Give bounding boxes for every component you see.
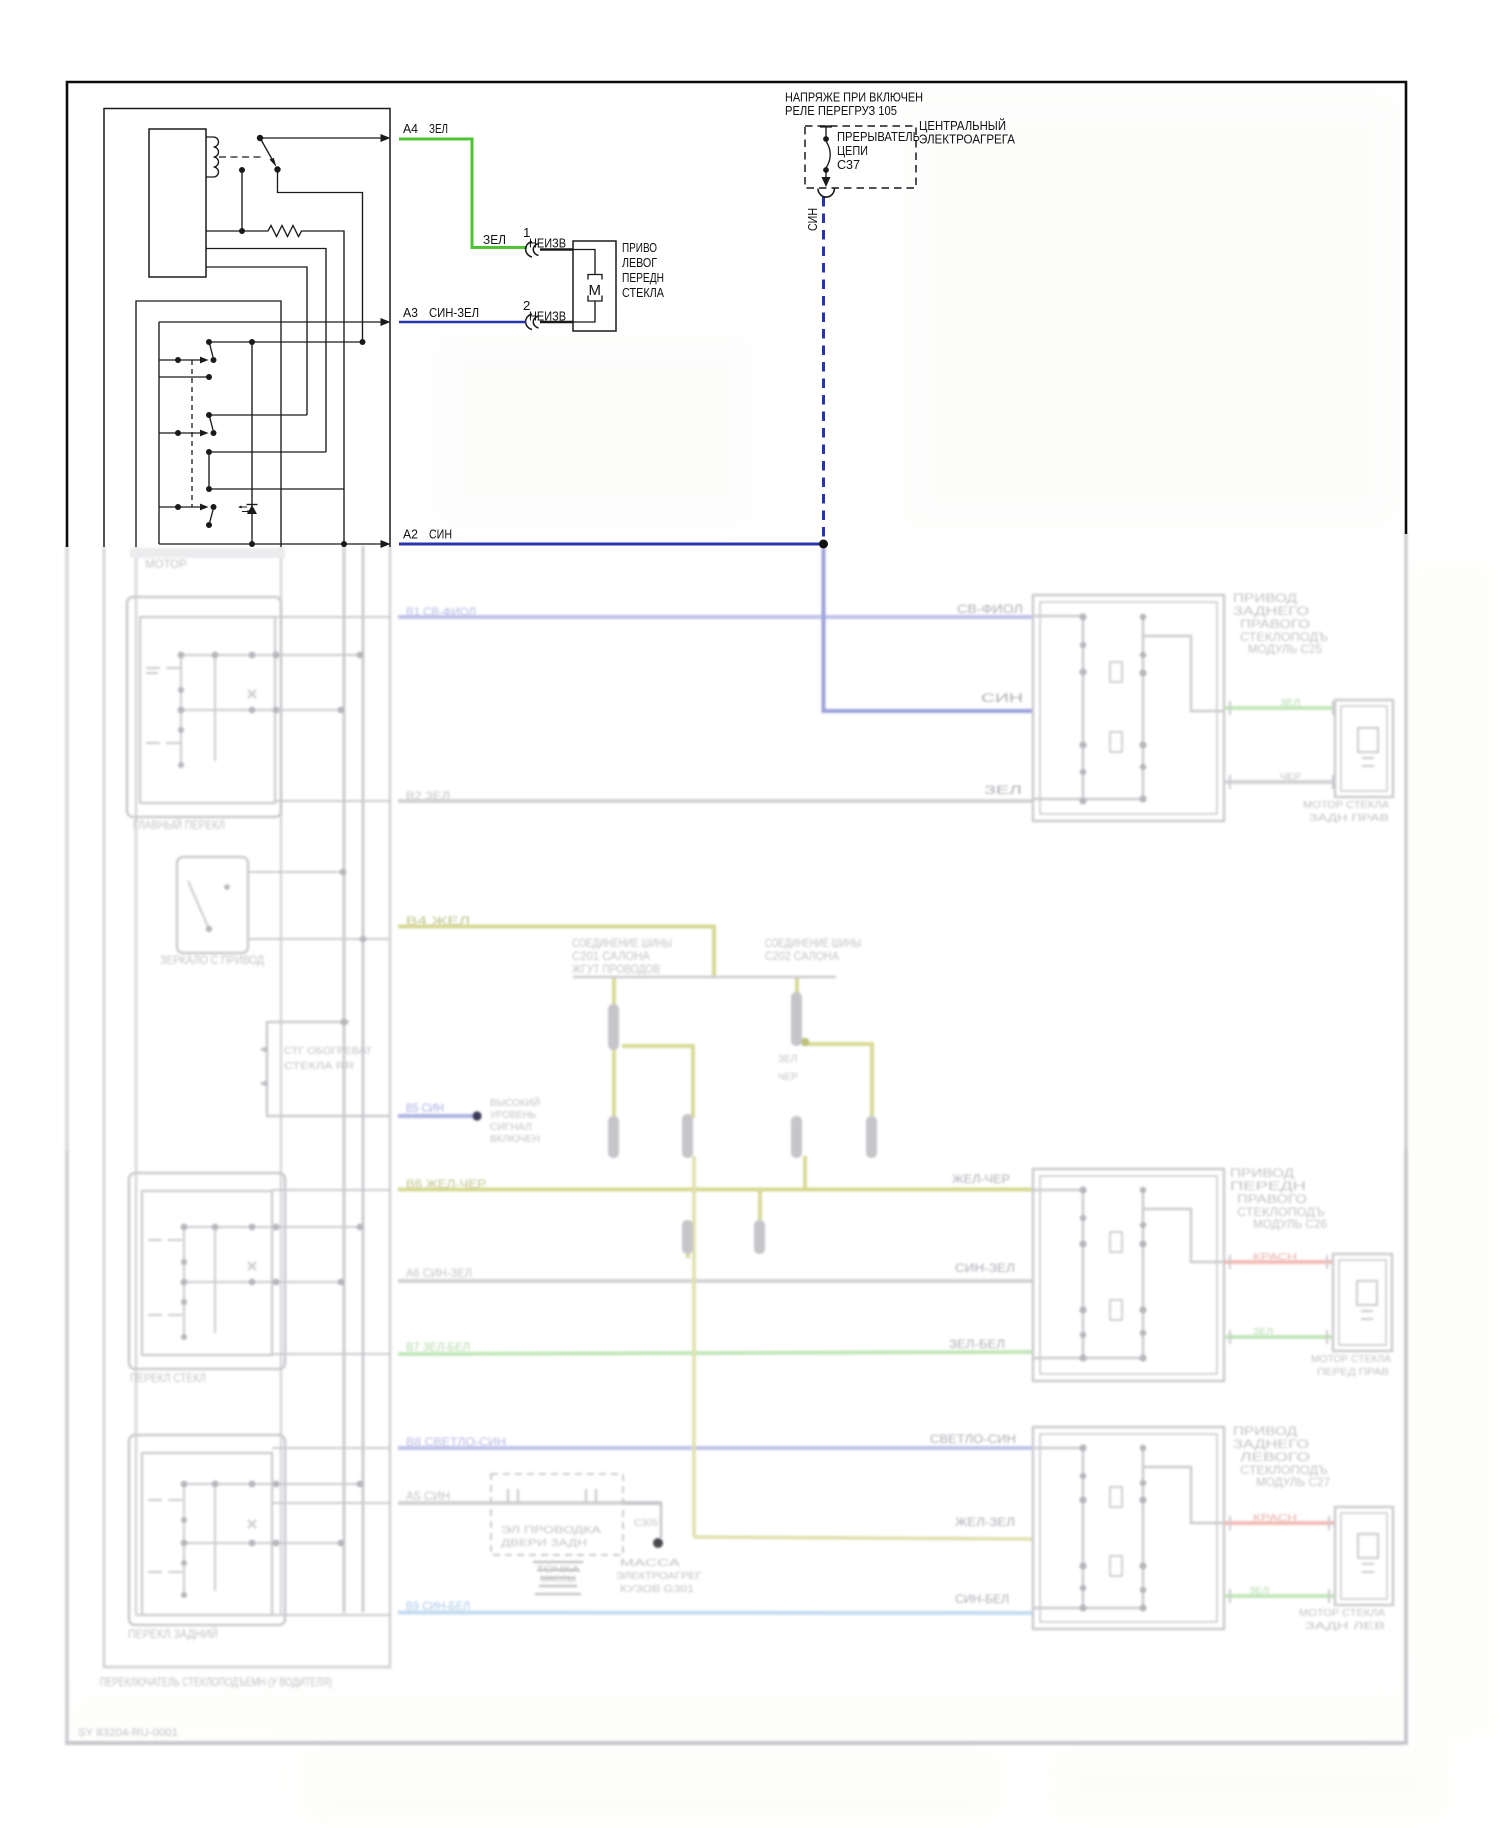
svg-text:ЗЕЛ: ЗЕЛ [429, 121, 448, 136]
svg-text:ПРАВОГО: ПРАВОГО [1240, 619, 1310, 631]
svg-text:ЗАДНЕГО: ЗАДНЕГО [1233, 606, 1309, 618]
svg-text:В4 ЖЕЛ: В4 ЖЕЛ [406, 916, 470, 928]
svg-text:НЕИЗВ: НЕИЗВ [529, 309, 566, 324]
svg-text:А4: А4 [403, 121, 418, 136]
svg-text:ЧЕР: ЧЕР [1280, 771, 1301, 783]
svg-text:ЖЕЛ-ЧЕР: ЖЕЛ-ЧЕР [952, 1174, 1010, 1186]
svg-text:ЗЕЛ: ЗЕЛ [778, 1054, 797, 1065]
svg-text:СВЕТЛО-СИН: СВЕТЛО-СИН [930, 1434, 1016, 1446]
svg-text:ДВЕРИ ЗАДН: ДВЕРИ ЗАДН [501, 1537, 587, 1549]
svg-text:СИН: СИН [981, 693, 1023, 705]
svg-text:ЭЛЕКТРОАГРЕГ: ЭЛЕКТРОАГРЕГ [616, 1570, 702, 1582]
svg-text:ЖГУТ ПРОВОДОВ: ЖГУТ ПРОВОДОВ [572, 964, 660, 976]
svg-text:ЗЕЛ: ЗЕЛ [1280, 697, 1300, 709]
svg-text:НЕИЗВ: НЕИЗВ [529, 236, 566, 251]
svg-text:ПЕРЕД ПРАВ: ПЕРЕД ПРАВ [1317, 1366, 1389, 1378]
svg-text:СТЕКЛОПОДЪ: СТЕКЛОПОДЪ [1240, 1465, 1328, 1477]
svg-text:ЗАДНЕГО: ЗАДНЕГО [1233, 1439, 1309, 1451]
svg-text:МОДУЛЬ С25: МОДУЛЬ С25 [1248, 644, 1322, 656]
svg-text:СТГ ОБОГРЕВАТ: СТГ ОБОГРЕВАТ [284, 1045, 373, 1057]
svg-text:ПРИВОД: ПРИВОД [1230, 1168, 1294, 1180]
svg-text:МОТОР СТЕКЛА: МОТОР СТЕКЛА [1299, 1607, 1385, 1619]
svg-text:SY 83204-RU-0001: SY 83204-RU-0001 [78, 1727, 178, 1739]
svg-text:РЕЛЕ ПЕРЕГРУЗ 105: РЕЛЕ ПЕРЕГРУЗ 105 [785, 103, 897, 118]
svg-text:СТЕКЛА RR: СТЕКЛА RR [284, 1060, 354, 1072]
svg-text:МАССА: МАССА [620, 1557, 680, 1569]
svg-text:СИН-ЗЕЛ: СИН-ЗЕЛ [429, 305, 479, 320]
svg-text:МОТОР СТЕКЛА: МОТОР СТЕКЛА [1303, 799, 1389, 811]
svg-text:В6 ЖЕЛ-ЧЕР: В6 ЖЕЛ-ЧЕР [406, 1179, 486, 1191]
svg-text:КУЗОВ G301: КУЗОВ G301 [620, 1583, 694, 1595]
svg-text:СИН-БЕЛ: СИН-БЕЛ [955, 1594, 1009, 1606]
svg-text:ПЕРЕКЛЮЧАТЕЛЬ СТЕКЛОПОДЪЕМН (У: ПЕРЕКЛЮЧАТЕЛЬ СТЕКЛОПОДЪЕМН (У ВОДИТЕЛЯ) [100, 1675, 332, 1689]
svg-text:ПРИВОД: ПРИВОД [1233, 593, 1297, 605]
svg-text:ЗЕЛ: ЗЕЛ [483, 232, 506, 247]
svg-text:ЗЕЛ: ЗЕЛ [1253, 1326, 1273, 1338]
svg-text:МОТОР СТЕКЛА: МОТОР СТЕКЛА [1311, 1353, 1391, 1365]
svg-text:В1 СВ-ФИОЛ: В1 СВ-ФИОЛ [406, 607, 476, 619]
svg-text:СИН: СИН [429, 527, 452, 542]
svg-text:СИН: СИН [805, 208, 820, 231]
svg-text:СТЕКЛА: СТЕКЛА [622, 285, 664, 300]
svg-text:С37: С37 [837, 157, 860, 172]
svg-text:СВ-ФИОЛ: СВ-ФИОЛ [957, 604, 1023, 616]
svg-text:А5 СИН: А5 СИН [406, 1491, 450, 1503]
svg-text:В2 ЗЕЛ: В2 ЗЕЛ [406, 791, 450, 803]
svg-text:ПРИВО: ПРИВО [622, 240, 657, 255]
svg-text:С202 САЛОНА: С202 САЛОНА [765, 951, 839, 963]
svg-text:КРАСН: КРАСН [1253, 1512, 1297, 1524]
svg-text:М: М [589, 282, 602, 299]
svg-text:ЖЕЛ-ЗЕЛ: ЖЕЛ-ЗЕЛ [955, 1517, 1015, 1529]
svg-text:СИН-ЗЕЛ: СИН-ЗЕЛ [955, 1263, 1015, 1275]
svg-text:С201 САЛОНА: С201 САЛОНА [572, 951, 650, 963]
svg-text:ПРИВОД: ПРИВОД [1233, 1426, 1297, 1438]
svg-text:ЧЕР: ЧЕР [778, 1072, 798, 1083]
svg-text:В9 СИН-БЕЛ: В9 СИН-БЕЛ [406, 1601, 470, 1613]
svg-text:ЗЕЛ-БЕЛ: ЗЕЛ-БЕЛ [949, 1339, 1005, 1351]
svg-text:СТЕКЛОПОДЪ: СТЕКЛОПОДЪ [1237, 1207, 1325, 1219]
svg-text:ЭЛЕКТРОАГРЕГА: ЭЛЕКТРОАГРЕГА [919, 132, 1015, 147]
svg-text:В5 СИН: В5 СИН [406, 1103, 444, 1115]
svg-text:ЗЕЛ: ЗЕЛ [1249, 1585, 1269, 1597]
svg-text:ЗЕЛ: ЗЕЛ [984, 785, 1022, 797]
svg-text:ПЕРЕКЛ СТЕКЛ: ПЕРЕКЛ СТЕКЛ [130, 1373, 206, 1385]
svg-text:ПЕРЕКЛ ЗАДНИЙ: ПЕРЕКЛ ЗАДНИЙ [128, 1628, 218, 1641]
svg-text:ПЕРЕДН: ПЕРЕДН [1230, 1181, 1306, 1193]
svg-text:ЛЕВОГ: ЛЕВОГ [622, 255, 657, 270]
svg-text:ЗЕРКАЛО С ПРИВОД: ЗЕРКАЛО С ПРИВОД [160, 955, 264, 967]
svg-text:В7 ЗЕЛ-БЕЛ: В7 ЗЕЛ-БЕЛ [406, 1342, 470, 1354]
svg-text:СОЕДИНЕНИЕ ШИНЫ: СОЕДИНЕНИЕ ШИНЫ [765, 938, 861, 950]
svg-text:СИГНАЛ: СИГНАЛ [490, 1121, 532, 1133]
svg-text:ВКЛЮЧЕН: ВКЛЮЧЕН [490, 1133, 540, 1145]
svg-text:ЗАДН ПРАВ: ЗАДН ПРАВ [1309, 812, 1389, 824]
svg-text:А3: А3 [403, 305, 418, 320]
svg-text:ЗАДН ЛЕВ: ЗАДН ЛЕВ [1305, 1620, 1385, 1632]
svg-text:КРАСН: КРАСН [1253, 1251, 1297, 1263]
svg-text:ПЕРЕДН: ПЕРЕДН [622, 270, 664, 285]
svg-text:УРОВЕНЬ: УРОВЕНЬ [490, 1109, 536, 1121]
svg-text:ВЫСОКИЙ: ВЫСОКИЙ [490, 1096, 540, 1109]
svg-text:МОТОР: МОТОР [145, 559, 187, 571]
svg-text:ЛЕВОГО: ЛЕВОГО [1240, 1452, 1310, 1464]
svg-text:А6 СИН-ЗЕЛ: А6 СИН-ЗЕЛ [406, 1268, 472, 1280]
svg-text:МОДУЛЬ С27: МОДУЛЬ С27 [1256, 1477, 1330, 1489]
svg-text:А2: А2 [403, 527, 418, 542]
svg-text:МАССЫ: МАССЫ [540, 1574, 576, 1585]
svg-text:ЭЛ ПРОВОДКА: ЭЛ ПРОВОДКА [501, 1524, 601, 1536]
svg-text:В8 СВЕТЛО-СИН: В8 СВЕТЛО-СИН [406, 1437, 506, 1449]
svg-text:СТЕКЛОПОДЪ: СТЕКЛОПОДЪ [1240, 632, 1328, 644]
svg-text:ЦЕПИ: ЦЕПИ [837, 143, 868, 158]
svg-text:ГЛАВНЫЙ ПЕРЕКЛ: ГЛАВНЫЙ ПЕРЕКЛ [133, 819, 225, 832]
svg-text:МОДУЛЬ С26: МОДУЛЬ С26 [1253, 1219, 1327, 1231]
svg-text:ПРАВОГО: ПРАВОГО [1237, 1194, 1307, 1206]
svg-text:ПРЕРЫВАТЕЛЬ: ПРЕРЫВАТЕЛЬ [837, 129, 920, 144]
svg-text:СОЕДИНЕНИЕ ШИНЫ: СОЕДИНЕНИЕ ШИНЫ [572, 938, 672, 950]
svg-text:С305: С305 [634, 1518, 658, 1529]
